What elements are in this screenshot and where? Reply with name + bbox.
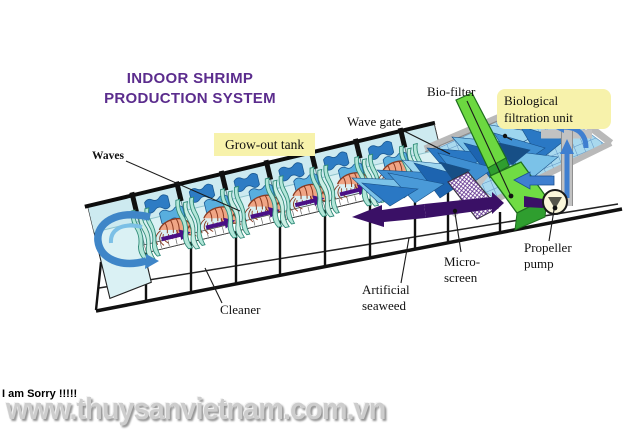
sorry-text: I am Sorry !!!!!: [2, 388, 77, 400]
page-title: INDOOR SHRIMP PRODUCTION SYSTEM: [84, 69, 296, 109]
label-wave-gate: Wave gate: [347, 114, 401, 129]
label-propeller-pump: Propeller pump: [524, 240, 572, 272]
label-bio-filter: Bio-filter: [427, 84, 475, 99]
micro-line-2: screen: [444, 270, 480, 286]
bio-unit-line-2: filtration unit: [504, 109, 604, 126]
propeller-line-1: Propeller: [524, 240, 572, 256]
bio-unit-line-1: Biological: [504, 92, 604, 109]
label-grow-out-tank: Grow-out tank: [214, 133, 315, 156]
artificial-line-2: seaweed: [362, 298, 410, 314]
diagram-illustration: [0, 0, 640, 430]
label-artificial-seaweed: Artificial seaweed: [362, 282, 410, 314]
artificial-line-1: Artificial: [362, 282, 410, 298]
micro-line-1: Micro-: [444, 254, 480, 270]
label-waves: Waves: [92, 149, 124, 164]
title-line-2: PRODUCTION SYSTEM: [84, 89, 296, 109]
shrimp-production-diagram: INDOOR SHRIMP PRODUCTION SYSTEM Waves Gr…: [0, 0, 640, 430]
title-line-1: INDOOR SHRIMP: [84, 69, 296, 89]
label-cleaner: Cleaner: [220, 302, 260, 317]
label-biological-filtration-unit: Biological filtration unit: [497, 89, 611, 129]
label-micro-screen: Micro- screen: [444, 254, 480, 286]
propeller-line-2: pump: [524, 256, 572, 272]
